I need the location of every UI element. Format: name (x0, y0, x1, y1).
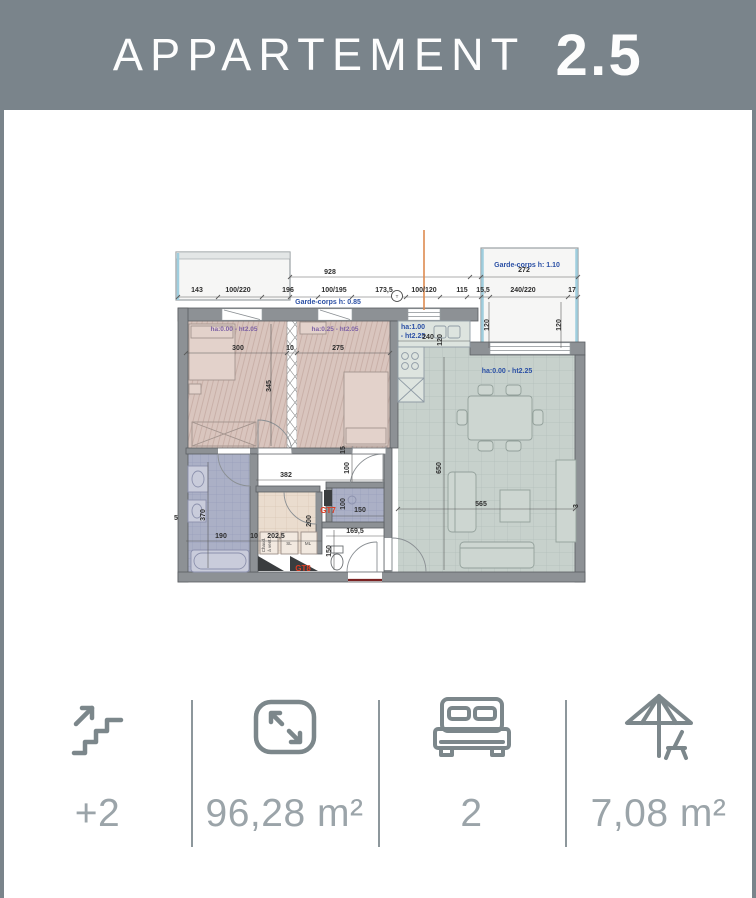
plan-label: 300 (232, 345, 244, 352)
plan-label: 275 (332, 345, 344, 352)
plan-label: 10 (286, 345, 294, 352)
plan-label: 190 (215, 533, 227, 540)
plan-label: 382 (280, 472, 292, 479)
plan-label: ha:0.00 - ht2.25 (482, 368, 533, 375)
dining-table (468, 396, 532, 440)
plan-label: 143 (191, 287, 203, 294)
sofa (460, 542, 534, 568)
washbasin (188, 466, 208, 492)
plan-label: à vent. (267, 538, 272, 552)
plan-label: 115 (456, 287, 467, 294)
stats-strip: +2 96,28 m² 2 (4, 690, 752, 860)
plan-label: 565 (475, 501, 487, 508)
coffee-table (500, 490, 530, 522)
plan-label: 10 (250, 533, 258, 540)
floor-value: +2 (75, 792, 120, 836)
plan-label: GT7 (320, 506, 336, 515)
plan-label: ML (305, 541, 312, 546)
plan-label: 650 (436, 462, 443, 474)
plan-label: 345 (266, 380, 273, 392)
plan-label: ha:1.00 (401, 324, 425, 331)
plan-label: 100/220 (225, 287, 250, 294)
plan-label: 100 (340, 498, 347, 510)
plan-label: 370 (200, 509, 207, 521)
plan-label: 5 (174, 515, 178, 522)
plan-label: GT8 (295, 564, 311, 573)
plan-label: 100 (344, 462, 351, 474)
stairs-up-icon (66, 694, 130, 760)
plan-label: 196 (282, 287, 294, 294)
plan-label: 928 (324, 269, 336, 276)
stat-area: 96,28 m² (191, 690, 378, 860)
plan-label: 150 (354, 507, 366, 514)
header-banner: APPARTEMENT 2.5 (0, 0, 756, 110)
double-bed-icon (426, 694, 518, 760)
plan-label: Garde-corps h: 1.10 (494, 262, 560, 269)
plan-label: 240 (422, 334, 434, 341)
plan-label: 15 (340, 446, 347, 454)
plan-label: T (396, 294, 399, 299)
plan-label: 240/220 (510, 287, 535, 294)
stat-bedrooms: 2 (378, 690, 565, 860)
bedrooms-value: 2 (460, 792, 482, 836)
sideboard (556, 460, 576, 542)
plan-label: 120 (556, 319, 563, 331)
stat-outdoor: 7,08 m² (565, 690, 752, 860)
area-value: 96,28 m² (206, 792, 364, 836)
page-title: APPARTEMENT (113, 29, 526, 81)
plan-label: ha:0.25 - ht2.05 (312, 326, 359, 333)
plan-label: SL (286, 541, 292, 546)
plan-label: 15,5 (476, 287, 490, 294)
plan-label: 173,5 (375, 287, 393, 294)
armchair (448, 472, 476, 532)
duct-between-bedrooms (287, 321, 297, 448)
expand-icon (252, 694, 318, 760)
outdoor-value: 7,08 m² (591, 792, 727, 836)
plan-label: 120 (484, 319, 491, 331)
apartment-plan-page: { "header": { "title": "APPARTEMENT", "n… (0, 0, 756, 898)
stat-floor: +2 (4, 690, 191, 860)
plan-label: ha:0.00 - ht2.05 (211, 326, 258, 333)
plan-label: 120 (437, 334, 444, 346)
plan-label: 150 (326, 545, 333, 557)
apartment-number: 2.5 (556, 22, 644, 89)
plan-label: Chaud. (261, 538, 266, 553)
plan-label: Garde-corps h: 0.85 (295, 299, 361, 306)
plan-label: 17 (568, 287, 576, 294)
parasol-chair-icon (613, 694, 705, 760)
plan-label: 200 (306, 515, 313, 527)
plan-label: 100/195 (321, 287, 346, 294)
plan-label: 3 (573, 504, 580, 508)
plan-label: 100/120 (411, 287, 436, 294)
plan-label: 169,5 (346, 528, 364, 535)
floor-plan: 928272143100/220196100/195173,5100/12011… (0, 110, 756, 670)
